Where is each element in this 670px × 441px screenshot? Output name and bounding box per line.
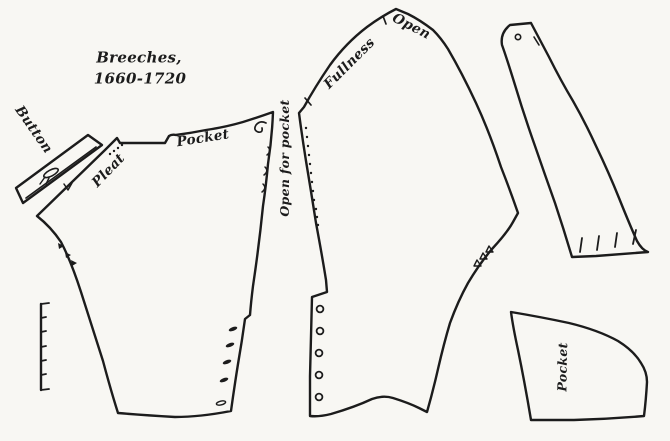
pocket-opening-curl-icon: [255, 122, 266, 132]
strap-outline: [502, 23, 648, 257]
page-title-line2: 1660-1720: [94, 72, 186, 87]
waistband-outline: [16, 135, 102, 203]
front-side-notch-icons: [58, 243, 77, 266]
back-gather-notch-icons: [474, 246, 493, 266]
pocket-outline: [511, 312, 647, 420]
front-piece: [37, 112, 273, 417]
strap-bottom-notch-icons: [580, 230, 636, 252]
back-knee-buttonhole-icons: [316, 306, 324, 401]
label-open-for-pocket: Open for pocket: [279, 99, 292, 216]
open-peak-tick: [383, 16, 386, 24]
strap-piece: [502, 23, 648, 257]
pocket-piece: [511, 312, 647, 420]
pattern-diagram-page: Breeches, 1660-1720 Button Pleat Pocket …: [0, 0, 670, 441]
page-title-line1: Breeches,: [96, 51, 182, 66]
waistband-piece: [16, 135, 102, 203]
strap-buttonhole-icon: [515, 34, 520, 39]
label-pocket-piece: Pocket: [556, 342, 569, 391]
scale-bar: [41, 303, 49, 390]
back-seam-dots: [305, 127, 319, 226]
